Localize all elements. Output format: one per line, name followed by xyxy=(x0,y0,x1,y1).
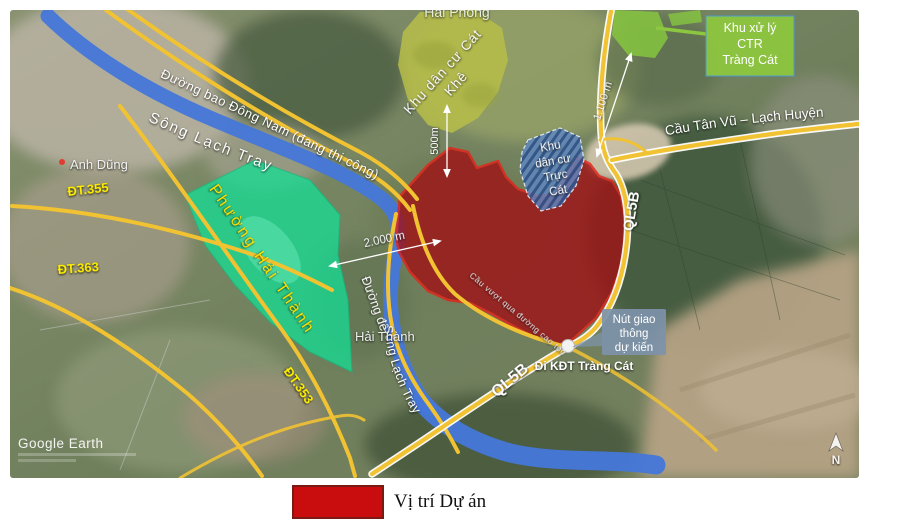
attribution-blur-2 xyxy=(18,459,76,462)
svg-text:Nút giao: Nút giao xyxy=(613,314,656,326)
hai-thanh-label: Hải Thành xyxy=(355,329,415,344)
map-canvas: Đường bao Đông Nam (đang thi công) Sông … xyxy=(0,0,917,532)
figure-page: Đường bao Đông Nam (đang thi công) Sông … xyxy=(0,0,917,532)
satellite-imagery: Đường bao Đông Nam (đang thi công) Sông … xyxy=(0,0,890,497)
attribution-blur-1 xyxy=(18,453,136,456)
anh-dung-marker-icon xyxy=(59,159,65,165)
dist-500-label: 500m xyxy=(429,127,441,155)
google-earth-watermark: Google Earth xyxy=(18,436,104,451)
svg-text:dự kiến: dự kiến xyxy=(615,342,653,354)
anh-dung-label: Anh Dũng xyxy=(70,157,128,172)
legend-project-label: Vị trí Dự án xyxy=(394,491,486,513)
hai-phong-label: Hải Phòng xyxy=(424,4,489,20)
di-kdt-label: Đi KĐT Tràng Cát xyxy=(535,359,634,373)
svg-text:Tràng Cát: Tràng Cát xyxy=(722,53,778,67)
svg-text:thông: thông xyxy=(620,328,649,340)
legend-project-swatch xyxy=(292,485,384,519)
svg-text:N: N xyxy=(832,453,841,467)
svg-text:Khu xử lý: Khu xử lý xyxy=(724,21,778,35)
dt363-label: ĐT.363 xyxy=(57,259,99,277)
svg-text:CTR: CTR xyxy=(737,37,763,51)
